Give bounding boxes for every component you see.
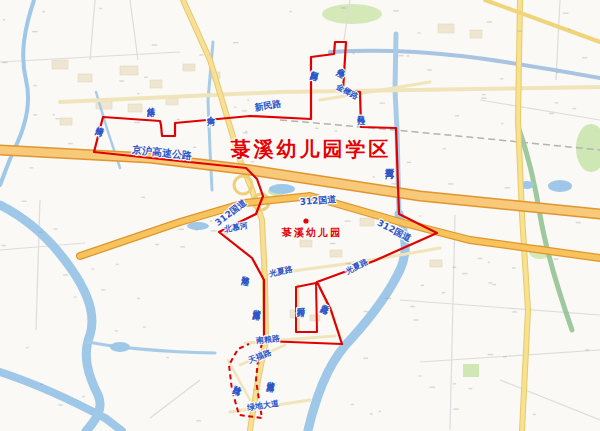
kindergarten-marker[interactable] bbox=[303, 218, 308, 223]
map-graphics bbox=[0, 0, 600, 431]
map-canvas[interactable]: 菉溪幼儿园学区菉溪幼儿园京沪高速公路312国道312国道312国道新民路佳乐路合… bbox=[0, 0, 600, 431]
